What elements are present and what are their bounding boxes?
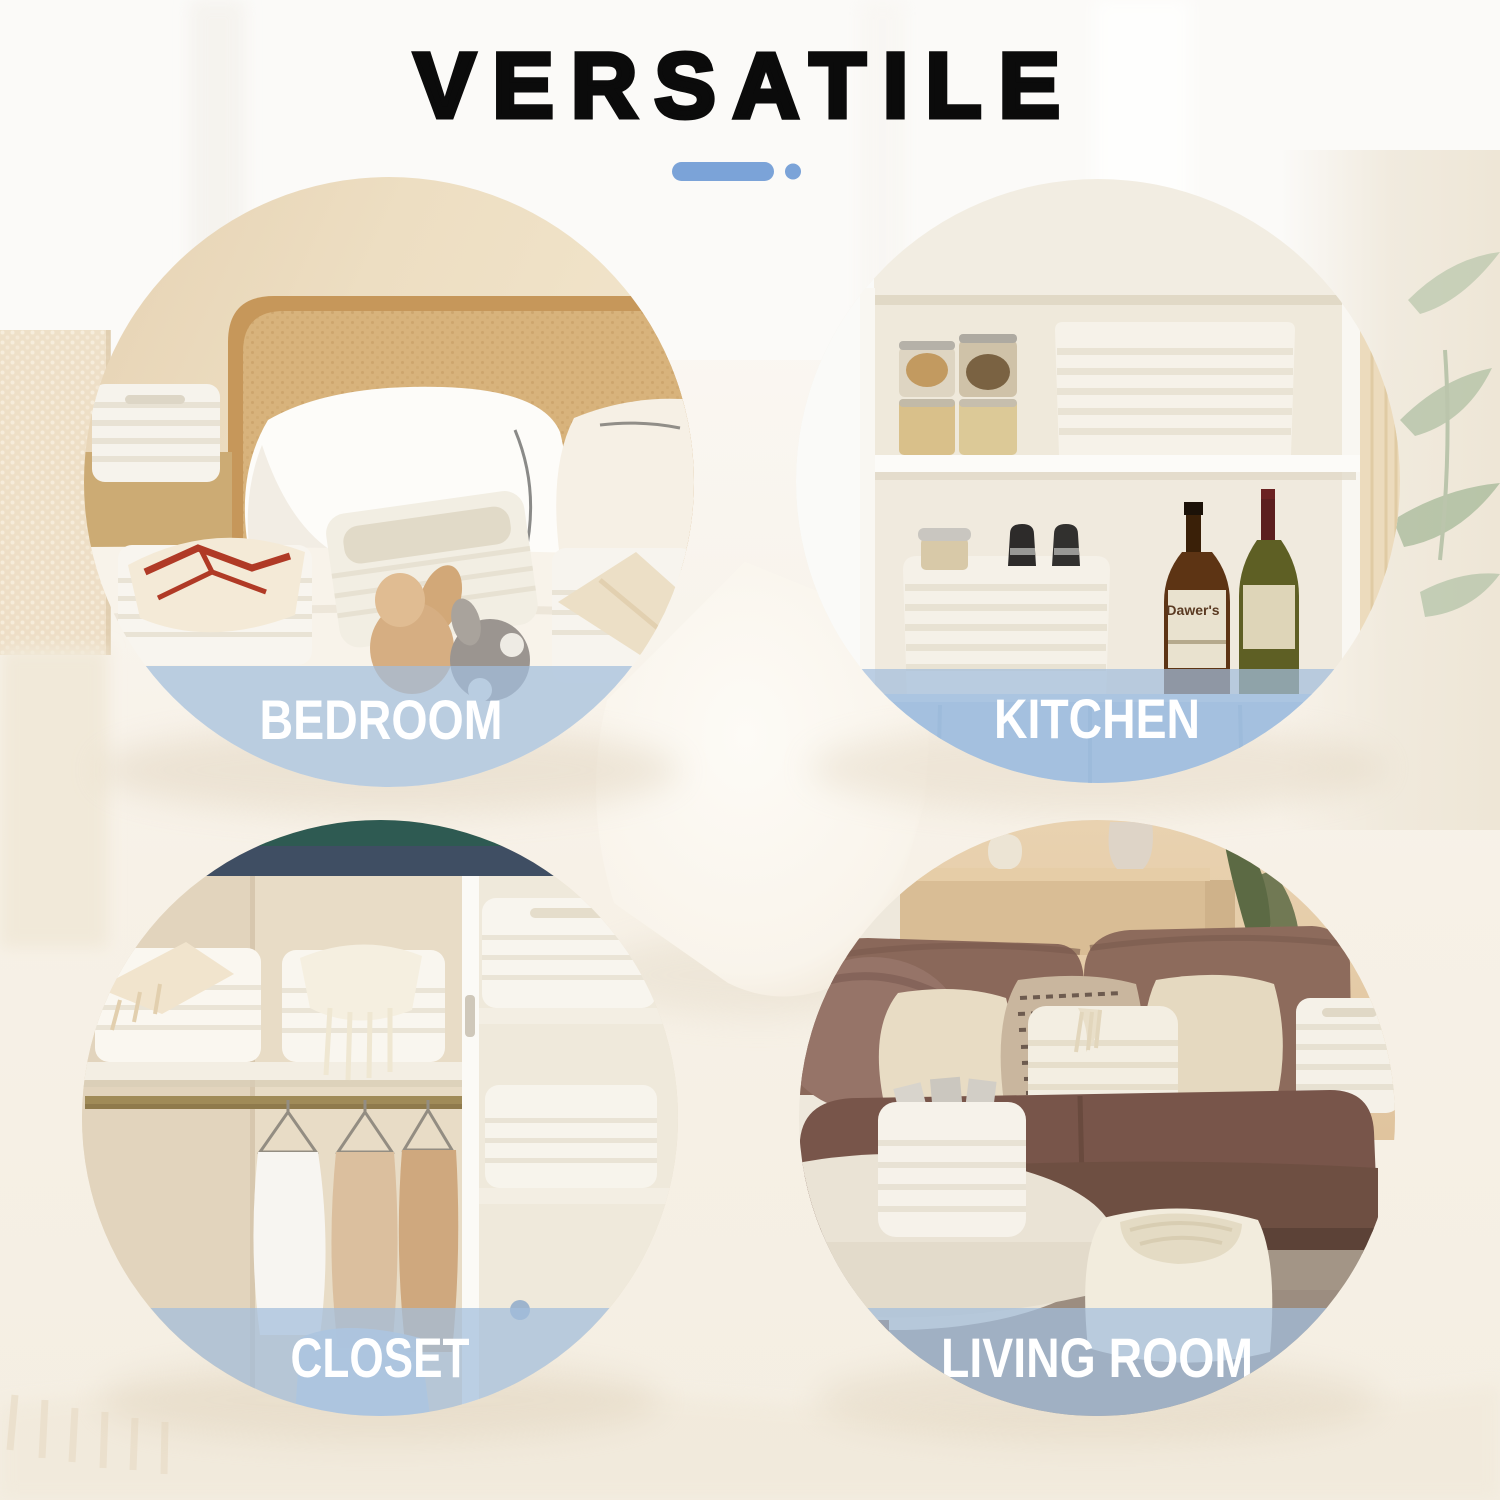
svg-text:Dawer's: Dawer's [1166,602,1219,618]
svg-text:KITCHEN: KITCHEN [994,687,1200,750]
svg-text:CLOSET: CLOSET [291,1326,470,1389]
svg-text:LIVING ROOM: LIVING ROOM [941,1326,1253,1389]
svg-text:BEDROOM: BEDROOM [260,688,503,751]
svg-text:VERSATILE: VERSATILE [414,35,1062,137]
